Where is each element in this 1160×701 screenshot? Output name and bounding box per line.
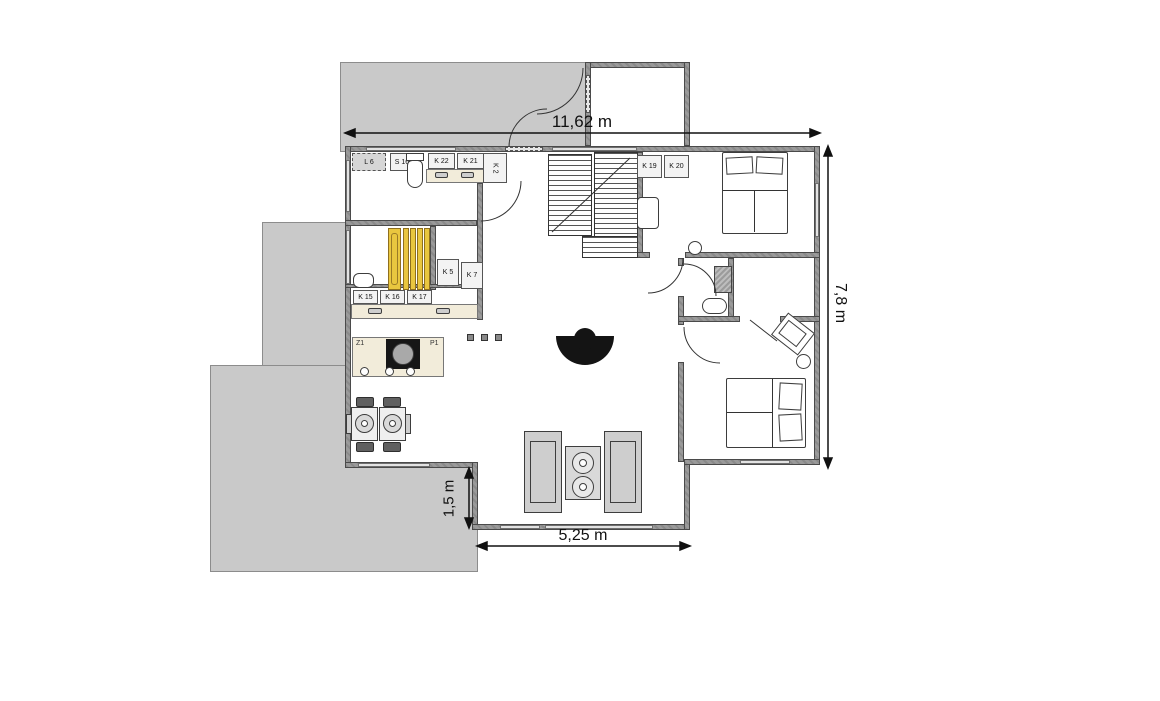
bedroom1-pillow-left [726, 156, 754, 174]
cabinet-k20: K 20 [664, 155, 689, 178]
cabinet-k16: K 16 [380, 290, 405, 304]
kitchen-counter-hob [436, 308, 450, 314]
kitchen-counter-sink [368, 308, 382, 314]
bedroom1-stool [688, 241, 702, 255]
interior-porch [591, 68, 684, 146]
bedroom1-blanket-split [754, 190, 755, 232]
washbasin [353, 273, 374, 288]
island-label-right: P1 [430, 340, 439, 347]
bedroom1-blanket-line [723, 190, 787, 191]
window-left-upper [346, 160, 350, 212]
wall-sauna-right [430, 226, 436, 290]
window-top-stairs [552, 147, 637, 151]
dining-plate-left-center [361, 420, 368, 427]
bedroom1-nightstand [637, 197, 659, 229]
porch-wall-right [684, 62, 690, 146]
coffee-table-circle-bottom-dot [579, 483, 587, 491]
floor-marker-2 [481, 334, 488, 341]
stairs-flight-left [548, 154, 592, 236]
bedroom1-pillow-right [756, 156, 784, 174]
island-knob-2 [385, 367, 394, 376]
wall-bedroom1-bottom-a [637, 252, 650, 258]
cabinet-k5: K 5 [437, 259, 459, 286]
deck-top [340, 62, 591, 152]
dimension-bottom-label: 5,25 m [538, 527, 628, 545]
cabinet-k21: K 21 [457, 153, 484, 169]
cabinet-k7: K 7 [461, 262, 483, 289]
cabinet-k19: K 19 [637, 155, 662, 178]
wall-bath-left-stub [678, 258, 684, 266]
sauna-bench-2 [403, 228, 409, 290]
entry-threshold [505, 147, 543, 151]
wall-bedroom1-bottom-b [685, 252, 820, 258]
cabinet-k15: K 15 [353, 290, 378, 304]
shower [714, 266, 732, 293]
island-knob-1 [360, 367, 369, 376]
wall-utility-hall [477, 183, 483, 320]
window-bottom-dining [358, 463, 430, 467]
bedroom2-blanket-split [727, 412, 772, 413]
deck-left [262, 222, 351, 368]
window-bedroom2-bottom [740, 460, 790, 464]
coffee-table-circle-top-dot [579, 459, 587, 467]
dining-chair-top-right [383, 397, 401, 407]
porch-wall-top [585, 62, 690, 68]
stairs-landing [582, 236, 638, 258]
floor-plan: L 6 S 16 K 22 K 21 K 2 K 5 K 7 K 15 K 16… [0, 0, 1160, 701]
dimension-right-label: 7,8 m [831, 283, 849, 323]
stove-burner [392, 343, 414, 365]
window-left-lower [346, 230, 350, 284]
wall-bump-left [472, 462, 478, 530]
window-bump-left [500, 525, 540, 529]
sauna-bench-4 [417, 228, 423, 290]
wall-utility-sauna [345, 220, 477, 226]
cabinet-l6: L 6 [352, 153, 386, 171]
dining-chair-bottom-left [356, 442, 374, 452]
dining-chair-top-left [356, 397, 374, 407]
wall-bedroom2-left [678, 362, 684, 462]
dining-plate-right-center [389, 420, 396, 427]
window-top-utility [366, 147, 456, 151]
bath-toilet [702, 298, 727, 314]
floor-marker-3 [495, 334, 502, 341]
bedroom2-blanket-line [772, 379, 773, 447]
wall-bump-right [684, 459, 690, 530]
utility-counter-sink-left [435, 172, 448, 178]
dining-chair-bottom-right [383, 442, 401, 452]
bedroom2-pillow-top [778, 382, 802, 410]
sofa-left-cushion [530, 441, 556, 503]
bedroom2-pillow-bottom [778, 413, 802, 441]
sauna-bench-5 [424, 228, 430, 290]
toilet-bowl [407, 160, 423, 188]
island-label-left: Z1 [356, 340, 364, 347]
cabinet-k17: K 17 [407, 290, 432, 304]
dimension-left-offset-label: 1,5 m [440, 480, 457, 518]
sofa-right-cushion [610, 441, 636, 503]
island-knob-3 [406, 367, 415, 376]
sauna-bench-wide-inner [391, 233, 398, 285]
floor-marker-1 [467, 334, 474, 341]
fireplace-flue [574, 328, 596, 350]
bedroom2-stool [796, 354, 811, 369]
cabinet-k22: K 22 [428, 153, 455, 169]
porch-door-threshold [586, 75, 590, 113]
wall-closet-bottom-a [678, 316, 740, 322]
sauna-bench-3 [410, 228, 416, 290]
utility-counter-sink-right [461, 172, 474, 178]
dimension-top-label: 11,62 m [537, 112, 627, 132]
window-right-bedroom1 [815, 183, 819, 237]
cabinet-k2: K 2 [483, 153, 507, 183]
